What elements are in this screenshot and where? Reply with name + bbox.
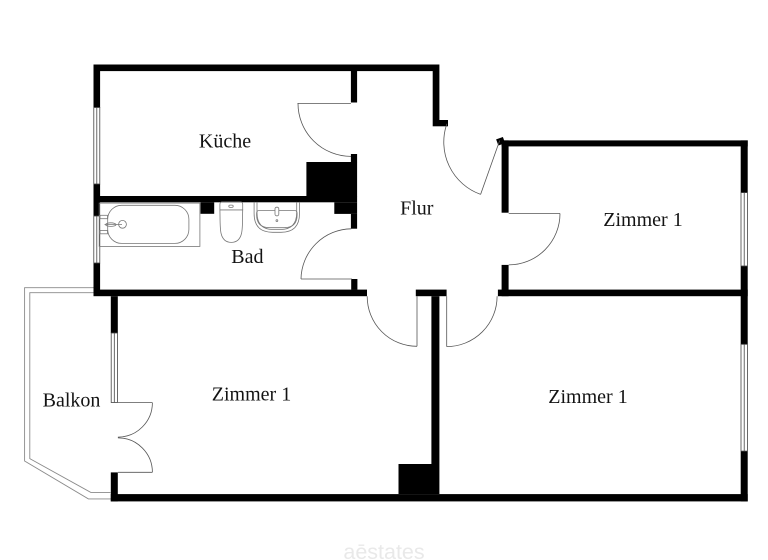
svg-text:aēstates: aēstates: [343, 540, 424, 560]
svg-text:Zimmer 1: Zimmer 1: [603, 209, 682, 231]
svg-text:Küche: Küche: [199, 131, 251, 153]
svg-text:Zimmer 1: Zimmer 1: [212, 384, 291, 406]
svg-text:Bad: Bad: [231, 246, 263, 268]
svg-text:Flur: Flur: [400, 198, 434, 220]
svg-text:Zimmer 1: Zimmer 1: [548, 386, 627, 408]
svg-text:Balkon: Balkon: [43, 390, 101, 412]
